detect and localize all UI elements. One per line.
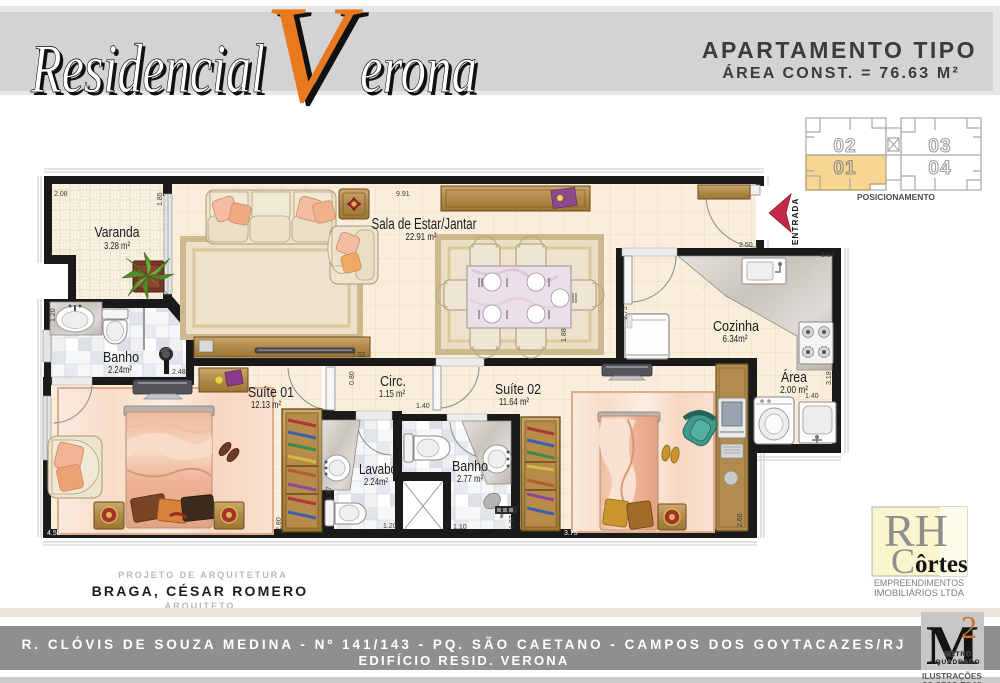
svg-text:ILUSTRAÇÕES: ILUSTRAÇÕES (922, 672, 983, 681)
svg-text:Varanda: Varanda (95, 225, 141, 241)
svg-text:11.64 m²: 11.64 m² (499, 396, 529, 408)
svg-text:EDIFÍCIO RESID. VERONA: EDIFÍCIO RESID. VERONA (359, 653, 570, 668)
svg-text:METRO: METRO (944, 651, 971, 658)
svg-text:3.64: 3.64 (821, 252, 835, 259)
svg-text:erona: erona (360, 30, 477, 107)
svg-text:22.91 m²: 22.91 m² (406, 231, 437, 243)
svg-text:2.77 m²: 2.77 m² (457, 473, 483, 485)
svg-text:1.40: 1.40 (416, 403, 430, 410)
svg-text:2.60: 2.60 (737, 513, 744, 527)
svg-text:Residencial: Residencial (30, 30, 265, 107)
svg-text:1.20: 1.20 (50, 308, 57, 322)
svg-text:ôrtes: ôrtes (915, 551, 968, 578)
svg-text:6.34m²: 6.34m² (723, 333, 748, 345)
svg-text:1.40: 1.40 (805, 393, 819, 400)
svg-text:02: 02 (833, 136, 856, 157)
svg-text:2: 2 (961, 609, 977, 645)
svg-text:3.75: 3.75 (564, 530, 578, 537)
svg-text:2.08: 2.08 (54, 191, 68, 198)
svg-text:ENTRADA: ENTRADA (791, 197, 800, 245)
svg-text:03: 03 (928, 136, 951, 157)
svg-text:1.87: 1.87 (509, 515, 516, 529)
svg-text:01: 01 (833, 158, 856, 179)
svg-text:V: V (264, 0, 363, 132)
svg-text:BRAGA, CÉSAR ROMERO: BRAGA, CÉSAR ROMERO (92, 583, 309, 599)
svg-text:1.15 m²: 1.15 m² (379, 388, 405, 400)
svg-text:1.10: 1.10 (453, 524, 467, 531)
svg-text:12.13 m²: 12.13 m² (251, 399, 281, 411)
svg-text:0.80: 0.80 (349, 371, 356, 385)
svg-text:1.85: 1.85 (157, 192, 164, 206)
svg-text:9.91: 9.91 (396, 191, 410, 198)
svg-text:2.50: 2.50 (739, 242, 753, 249)
svg-text:ÁREA CONST. = 76.63 M²: ÁREA CONST. = 76.63 M² (722, 63, 960, 82)
svg-text:POSICIONAMENTO: POSICIONAMENTO (857, 193, 935, 202)
svg-text:3.28 m²: 3.28 m² (104, 240, 130, 252)
svg-text:C: C (891, 541, 915, 581)
svg-text:7.02: 7.02 (352, 352, 366, 359)
svg-text:1.20: 1.20 (383, 523, 397, 530)
svg-text:QUADRADO: QUADRADO (936, 659, 981, 666)
svg-text:04: 04 (928, 158, 951, 179)
svg-text:R. CLÓVIS DE SOUZA MEDINA - Nº: R. CLÓVIS DE SOUZA MEDINA - Nº 141/143 -… (22, 637, 907, 652)
svg-text:2.48: 2.48 (172, 369, 186, 376)
svg-text:4.50: 4.50 (47, 530, 61, 537)
svg-text:PROJETO DE ARQUITETURA: PROJETO DE ARQUITETURA (118, 570, 288, 580)
svg-text:1.87: 1.87 (326, 486, 333, 500)
svg-text:2.24m²: 2.24m² (108, 364, 132, 376)
svg-text:1.88: 1.88 (561, 328, 568, 342)
svg-text:2.24m²: 2.24m² (364, 476, 388, 488)
svg-text:2.80: 2.80 (276, 517, 283, 531)
svg-text:1.75: 1.75 (622, 306, 629, 320)
svg-text:3.18: 3.18 (826, 371, 833, 385)
svg-text:IMOBILIÁRIOS LTDA: IMOBILIÁRIOS LTDA (874, 588, 965, 599)
svg-text:APARTAMENTO TIPO: APARTAMENTO TIPO (702, 37, 977, 63)
